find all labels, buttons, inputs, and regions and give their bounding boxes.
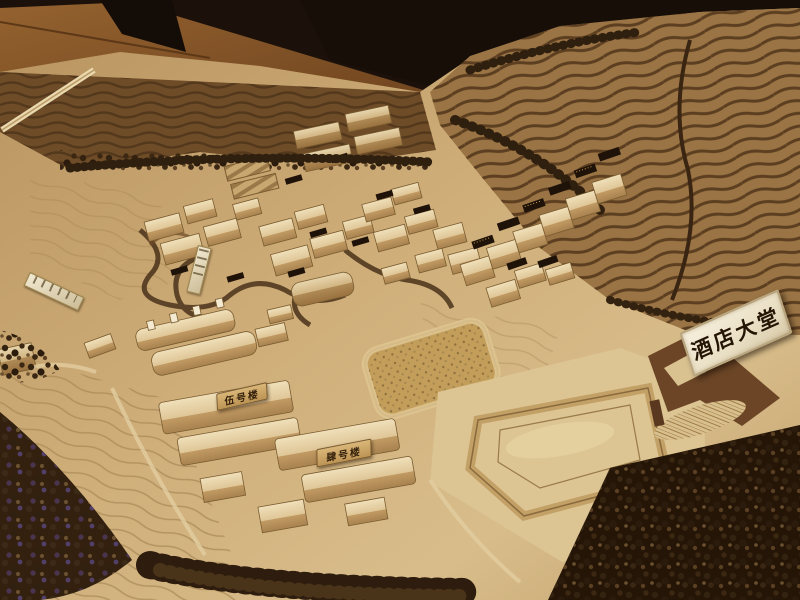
model-terrain-graphic [0,0,800,600]
model-photo-scene: 酒店大堂 伍号楼 肆号楼 [0,0,800,600]
